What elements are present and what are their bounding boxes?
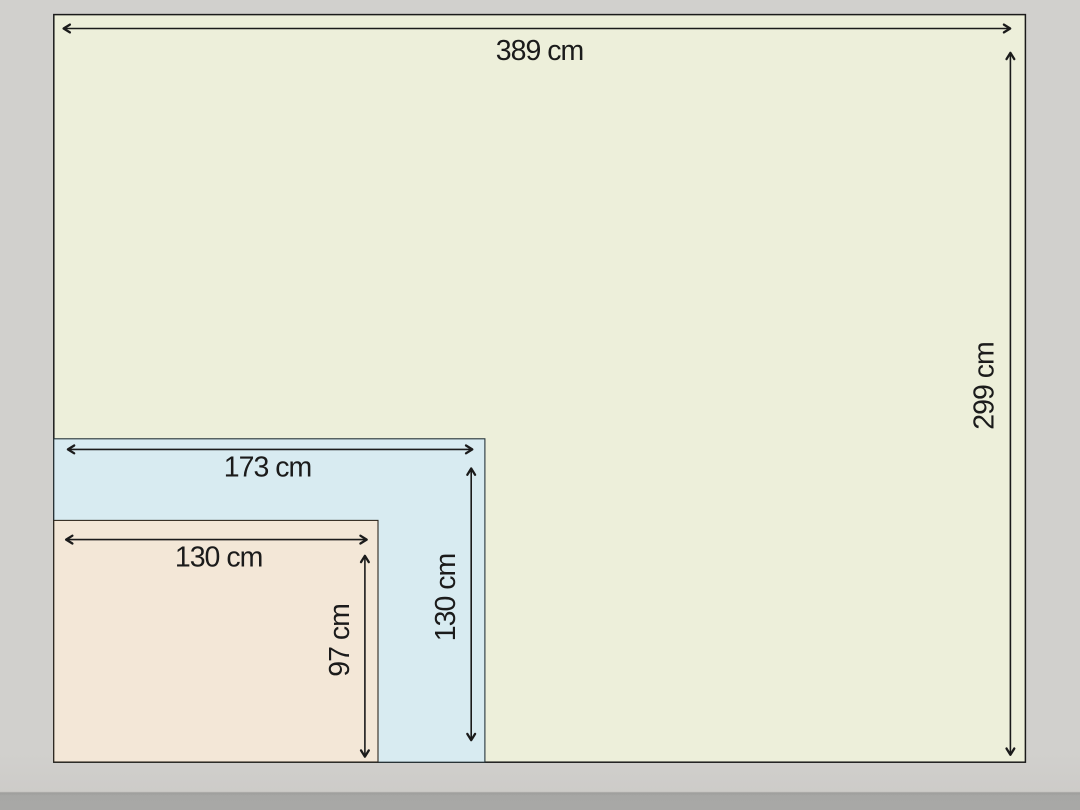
svg-text:97 cm: 97 cm	[324, 604, 356, 677]
svg-text:389 cm: 389 cm	[496, 35, 583, 67]
svg-text:130 cm: 130 cm	[430, 554, 462, 641]
svg-text:299 cm: 299 cm	[969, 342, 1001, 429]
svg-text:130 cm: 130 cm	[175, 542, 262, 574]
svg-text:173 cm: 173 cm	[224, 452, 311, 484]
